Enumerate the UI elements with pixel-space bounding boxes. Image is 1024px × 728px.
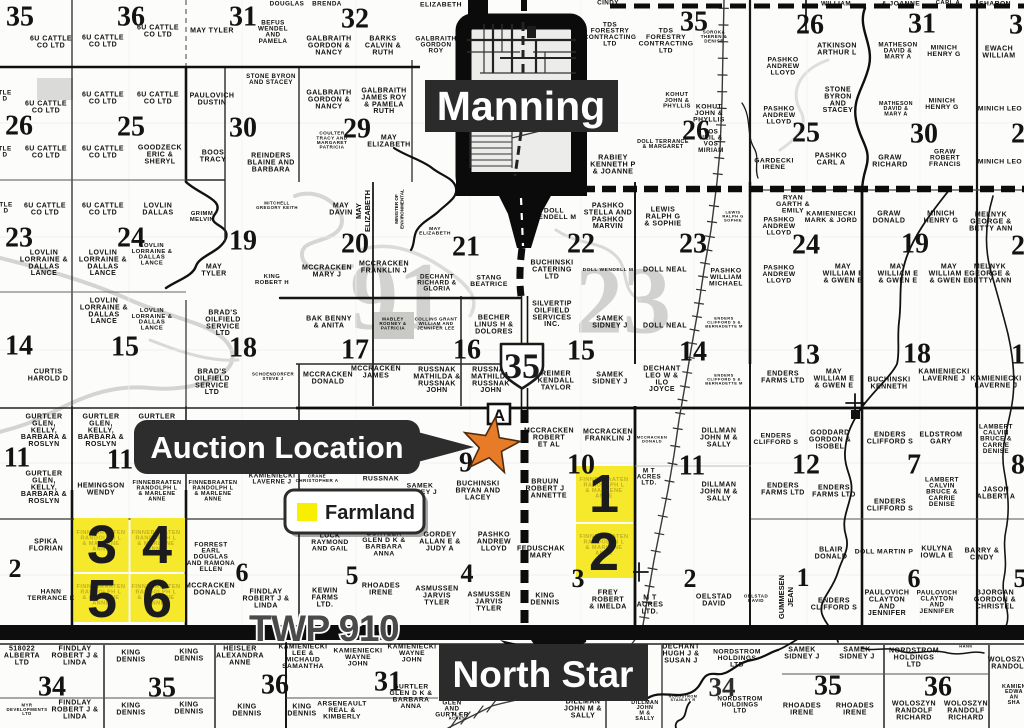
svg-text:Manning: Manning [437,83,606,129]
svg-text:5: 5 [346,561,359,590]
svg-text:MCCRACKENFRANKLIN J: MCCRACKENFRANKLIN J [359,261,409,275]
svg-text:24: 24 [117,223,145,254]
svg-text:BJORGANGORDON &CHRISTEL: BJORGANGORDON &CHRISTEL [974,590,1016,611]
svg-text:31: 31 [229,2,257,33]
svg-text:GRIMMMELVIN: GRIMMMELVIN [190,211,214,223]
svg-text:31: 31 [374,667,402,698]
svg-text:WOLOSZYNRANDOLF: WOLOSZYNRANDOLF [988,657,1024,671]
svg-text:23: 23 [679,229,707,260]
svg-text:BUCHINSKIKENNETH: BUCHINSKIKENNETH [867,377,910,391]
svg-text:19: 19 [229,226,257,257]
svg-text:23: 23 [5,223,33,254]
svg-text:LOVLINDALLAS: LOVLINDALLAS [142,203,173,217]
svg-text:3: 3 [87,515,117,575]
svg-text:25: 25 [117,112,145,143]
svg-text:ELIZABETH: ELIZABETH [420,1,462,8]
svg-text:34: 34 [38,672,66,703]
svg-text:6: 6 [236,558,249,587]
svg-text:18: 18 [229,333,257,364]
svg-text:14: 14 [679,337,707,368]
svg-text:2: 2 [684,564,697,593]
svg-text:12: 12 [792,450,820,481]
svg-text:HANK: HANK [959,644,973,649]
svg-text:35: 35 [504,346,540,386]
svg-text:LAMBERTCALVINBRUCE &CARRIEDENI: LAMBERTCALVINBRUCE &CARRIEDENISE [979,423,1013,455]
svg-text:26: 26 [796,10,824,41]
svg-text:WOLOSZYNRANDOLFRICHARD: WOLOSZYNRANDOLFRICHARD [892,701,936,722]
svg-text:26: 26 [5,111,33,142]
svg-text:3: 3 [1009,10,1023,41]
svg-text:PASHKOCARL A: PASHKOCARL A [815,153,847,167]
svg-text:35: 35 [6,2,34,33]
svg-text:20: 20 [341,229,369,260]
svg-text:ENDERSFARMS LTD: ENDERSFARMS LTD [761,371,805,385]
svg-text:MINISTER OFENVIRONMENTAL: MINISTER OFENVIRONMENTAL [394,189,405,229]
svg-text:31: 31 [908,9,936,40]
svg-text:ATKINSONARTHUR L: ATKINSONARTHUR L [817,43,857,57]
svg-text:ENDERSFARMS LTD: ENDERSFARMS LTD [761,483,805,497]
svg-text:Farmland: Farmland [325,502,415,524]
svg-text:2: 2 [1011,119,1024,150]
svg-text:MCCRACKENFRANKLIN J: MCCRACKENFRANKLIN J [583,429,633,443]
svg-text:36: 36 [261,670,289,701]
svg-text:LAMBERTCALVINBRUCE &CARRIEDENI: LAMBERTCALVINBRUCE &CARRIEDENISE [925,476,959,508]
svg-text:35: 35 [680,7,708,38]
svg-text:CURTISHAROLD D: CURTISHAROLD D [28,369,69,383]
svg-text:KAMIENIECKILAVERNE J: KAMIENIECKILAVERNE J [970,376,1021,390]
svg-text:4: 4 [461,559,474,588]
svg-text:MINICH LEO: MINICH LEO [978,158,1022,165]
svg-text:BRENDA: BRENDA [312,0,342,7]
svg-text:GRAWDONALD: GRAWDONALD [873,211,906,225]
svg-text:30: 30 [910,119,938,150]
svg-text:DOLL MARTIN P: DOLL MARTIN P [855,548,914,555]
svg-text:REINDERSBLAINE ANDBARBARA: REINDERSBLAINE ANDBARBARA [247,153,295,174]
svg-text:GURTLER: GURTLER [138,414,175,421]
svg-text:PASHKOANDREWLLOYD: PASHKOANDREWLLOYD [766,56,799,76]
svg-text:BECHERLINUS H &DOLORES: BECHERLINUS H &DOLORES [474,315,513,336]
svg-text:PASHKOANDREWLLOYD: PASHKOANDREWLLOYD [762,216,795,236]
svg-text:14: 14 [5,331,33,362]
svg-text:STONE BYRONAND STACEY: STONE BYRONAND STACEY [246,73,296,86]
svg-text:RUSSNAK: RUSSNAK [363,475,400,482]
svg-text:10: 10 [567,450,595,481]
svg-text:32: 32 [341,4,369,35]
svg-text:LEWISRALPH GSOPHIE: LEWISRALPH GSOPHIE [722,210,743,223]
svg-text:34: 34 [709,672,736,702]
svg-text:5: 5 [1014,564,1024,593]
svg-text:KULYNAIOWLA E: KULYNAIOWLA E [921,546,954,560]
svg-text:MINICHHENRY G: MINICHHENRY G [927,44,961,58]
svg-text:1: 1 [797,563,810,592]
svg-text:8: 8 [1011,450,1024,481]
svg-text:KAMIENIECKILAVERNE J: KAMIENIECKILAVERNE J [249,472,296,485]
svg-text:22: 22 [567,229,595,260]
svg-text:MAY TYLER: MAY TYLER [190,28,234,35]
svg-text:16: 16 [453,335,481,366]
svg-text:BEFUSWENDELANDPAMELA: BEFUSWENDELANDPAMELA [258,19,288,45]
svg-text:Auction Location: Auction Location [150,430,403,465]
svg-text:15: 15 [567,336,595,367]
svg-text:5: 5 [87,569,117,629]
svg-text:7: 7 [907,450,921,481]
svg-text:2: 2 [589,522,619,582]
svg-text:13: 13 [792,340,820,371]
svg-text:PAULOVICHCLAYTONANDJENNIFER: PAULOVICHCLAYTONANDJENNIFER [865,590,910,618]
svg-text:PASHKOANDREWLLOYD: PASHKOANDREWLLOYD [762,105,795,125]
svg-text:ENDERSFARMS LTD: ENDERSFARMS LTD [812,485,856,499]
svg-text:11: 11 [4,443,30,474]
svg-text:25: 25 [792,118,820,149]
svg-text:19: 19 [901,229,929,260]
svg-text:COLLINS GRANTWILLIAM ANDJENNIF: COLLINS GRANTWILLIAM ANDJENNIFER LEE [415,317,458,331]
svg-text:18: 18 [903,339,931,370]
svg-text:DECHANTHUGH J &SUSAN J: DECHANTHUGH J &SUSAN J [662,644,700,665]
svg-text:SAMEKSIDNEY J: SAMEKSIDNEY J [592,372,627,386]
svg-text:35: 35 [814,671,842,702]
svg-text:EWACHWILLIAM: EWACHWILLIAM [982,46,1015,60]
svg-text:2: 2 [9,554,22,583]
svg-text:TWP 910: TWP 910 [249,608,399,649]
svg-text:DOLL WENDELL M: DOLL WENDELL M [583,267,634,273]
svg-text:36: 36 [117,2,145,33]
svg-text:DOLL NEAL: DOLL NEAL [643,267,687,274]
svg-text:SAMEKSIDNEY J: SAMEKSIDNEY J [784,647,819,661]
svg-text:MINICHHENRY G: MINICHHENRY G [924,211,959,225]
svg-text:MABLEYRODNEY &PATRICIA: MABLEYRODNEY &PATRICIA [379,317,407,331]
svg-text:PASHKOANDREWLLOYD: PASHKOANDREWLLOYD [762,264,795,284]
svg-text:MINICHHENRY G: MINICHHENRY G [925,97,959,111]
svg-text:BOOSTRACY: BOOSTRACY [200,150,226,164]
svg-text:KAMIENIECKILAVERNE J: KAMIENIECKILAVERNE J [918,369,969,383]
svg-text:DOLL NEAL: DOLL NEAL [643,323,687,330]
svg-text:KAMIENIECKIMARK & JORD: KAMIENIECKIMARK & JORD [805,210,858,224]
svg-text:17: 17 [341,335,369,366]
svg-text:NORDSTROMSTANLEY R: NORDSTROMSTANLEY R [669,694,698,702]
svg-text:26: 26 [682,116,710,147]
svg-text:6: 6 [908,564,921,593]
svg-text:4: 4 [142,515,172,575]
svg-text:REIMERKENDALLTAYLOR: REIMERKENDALLTAYLOR [538,371,575,392]
svg-text:3: 3 [572,564,585,593]
svg-text:24: 24 [792,230,820,261]
svg-text:PAULOVICHCLAYTONANDJENNIFER: PAULOVICHCLAYTONANDJENNIFER [917,589,958,615]
svg-text:2: 2 [1011,231,1024,262]
svg-text:1: 1 [1011,340,1024,371]
svg-text:6: 6 [142,569,172,629]
svg-text:DOUGLAS: DOUGLAS [270,0,305,7]
svg-text:MELNYKGEORGE &BETTY ANN: MELNYKGEORGE &BETTY ANN [968,264,1012,285]
svg-text:PASHKOANDREWLLOYD: PASHKOANDREWLLOYD [477,532,511,553]
svg-text:MINICH LEO: MINICH LEO [978,105,1022,112]
svg-text:35: 35 [148,673,176,704]
svg-text:SAMEKSIDNEY J: SAMEKSIDNEY J [592,316,627,330]
svg-text:21: 21 [452,232,480,263]
svg-text:11: 11 [679,451,705,482]
svg-text:SAMEKSIDNEY J: SAMEKSIDNEY J [839,647,874,661]
svg-text:WOLOSZYNRANDOLFRICHARD: WOLOSZYNRANDOLFRICHARD [944,701,988,722]
svg-text:36: 36 [924,672,952,703]
svg-text:29: 29 [343,114,371,145]
svg-text:11: 11 [107,445,133,476]
svg-text:9: 9 [459,448,473,479]
svg-text:30: 30 [229,113,257,144]
svg-text:North Star: North Star [453,654,634,695]
svg-text:KOHUTJOHN &PHYLLIS: KOHUTJOHN &PHYLLIS [663,92,691,110]
svg-text:15: 15 [111,332,139,363]
svg-text:BLAIRDONALD: BLAIRDONALD [815,547,848,561]
svg-text:STONEBYRONANDSTACEY: STONEBYRONANDSTACEY [823,87,854,115]
svg-text:MELNYKGEORGE &BETTY ANN: MELNYKGEORGE &BETTY ANN [969,212,1013,233]
svg-text:PASHKOWILLIAMMICHAEL: PASHKOWILLIAMMICHAEL [709,267,743,287]
